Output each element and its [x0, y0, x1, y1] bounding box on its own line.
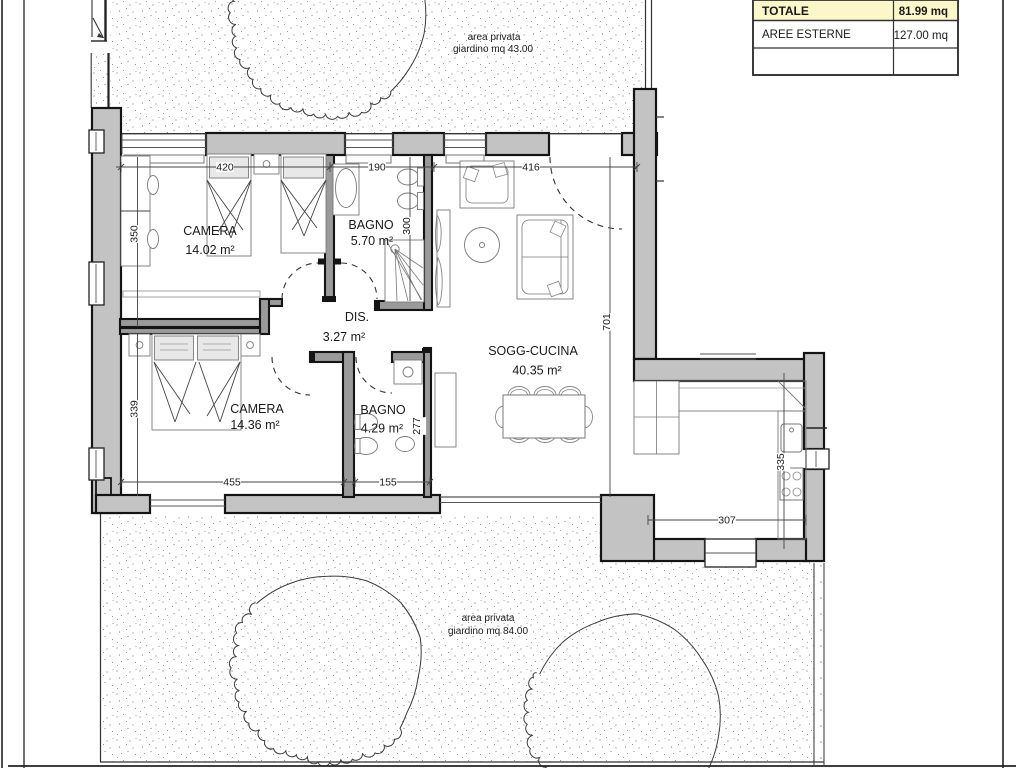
- svg-text:307: 307: [718, 515, 736, 527]
- svg-text:giardino mq 43.00: giardino mq 43.00: [453, 44, 533, 55]
- svg-text:127.00 mq: 127.00 mq: [894, 30, 948, 42]
- svg-text:AREE ESTERNE: AREE ESTERNE: [762, 29, 851, 41]
- svg-text:81.99 mq: 81.99 mq: [899, 6, 948, 18]
- svg-text:TOTALE: TOTALE: [762, 4, 809, 18]
- svg-text:CAMERA: CAMERA: [183, 224, 237, 238]
- svg-text:DIS.: DIS.: [345, 310, 369, 324]
- svg-text:190: 190: [368, 162, 386, 174]
- svg-text:area privata: area privata: [462, 613, 515, 624]
- svg-text:4.29 m²: 4.29 m²: [361, 422, 403, 436]
- svg-text:14.02 m²: 14.02 m²: [185, 243, 234, 257]
- svg-text:300: 300: [401, 217, 413, 235]
- svg-text:277: 277: [411, 417, 423, 435]
- svg-text:5.70 m²: 5.70 m²: [351, 234, 393, 248]
- svg-text:CAMERA: CAMERA: [230, 402, 284, 416]
- svg-text:BAGNO: BAGNO: [360, 403, 405, 417]
- svg-text:14.36 m²: 14.36 m²: [230, 418, 279, 432]
- svg-text:701: 701: [601, 313, 613, 331]
- svg-text:420: 420: [216, 162, 234, 174]
- svg-text:350: 350: [129, 225, 141, 243]
- svg-text:BAGNO: BAGNO: [348, 218, 393, 232]
- svg-text:335: 335: [775, 453, 787, 471]
- svg-text:SOGG-CUCINA: SOGG-CUCINA: [488, 344, 578, 358]
- svg-text:455: 455: [223, 477, 241, 489]
- svg-text:giardino mq 84.00: giardino mq 84.00: [448, 626, 528, 637]
- svg-text:area privata: area privata: [468, 32, 521, 43]
- svg-text:339: 339: [129, 400, 141, 418]
- svg-text:40.35 m²: 40.35 m²: [512, 364, 561, 378]
- svg-text:155: 155: [379, 477, 397, 489]
- svg-text:416: 416: [522, 162, 540, 174]
- svg-text:3.27 m²: 3.27 m²: [323, 330, 365, 344]
